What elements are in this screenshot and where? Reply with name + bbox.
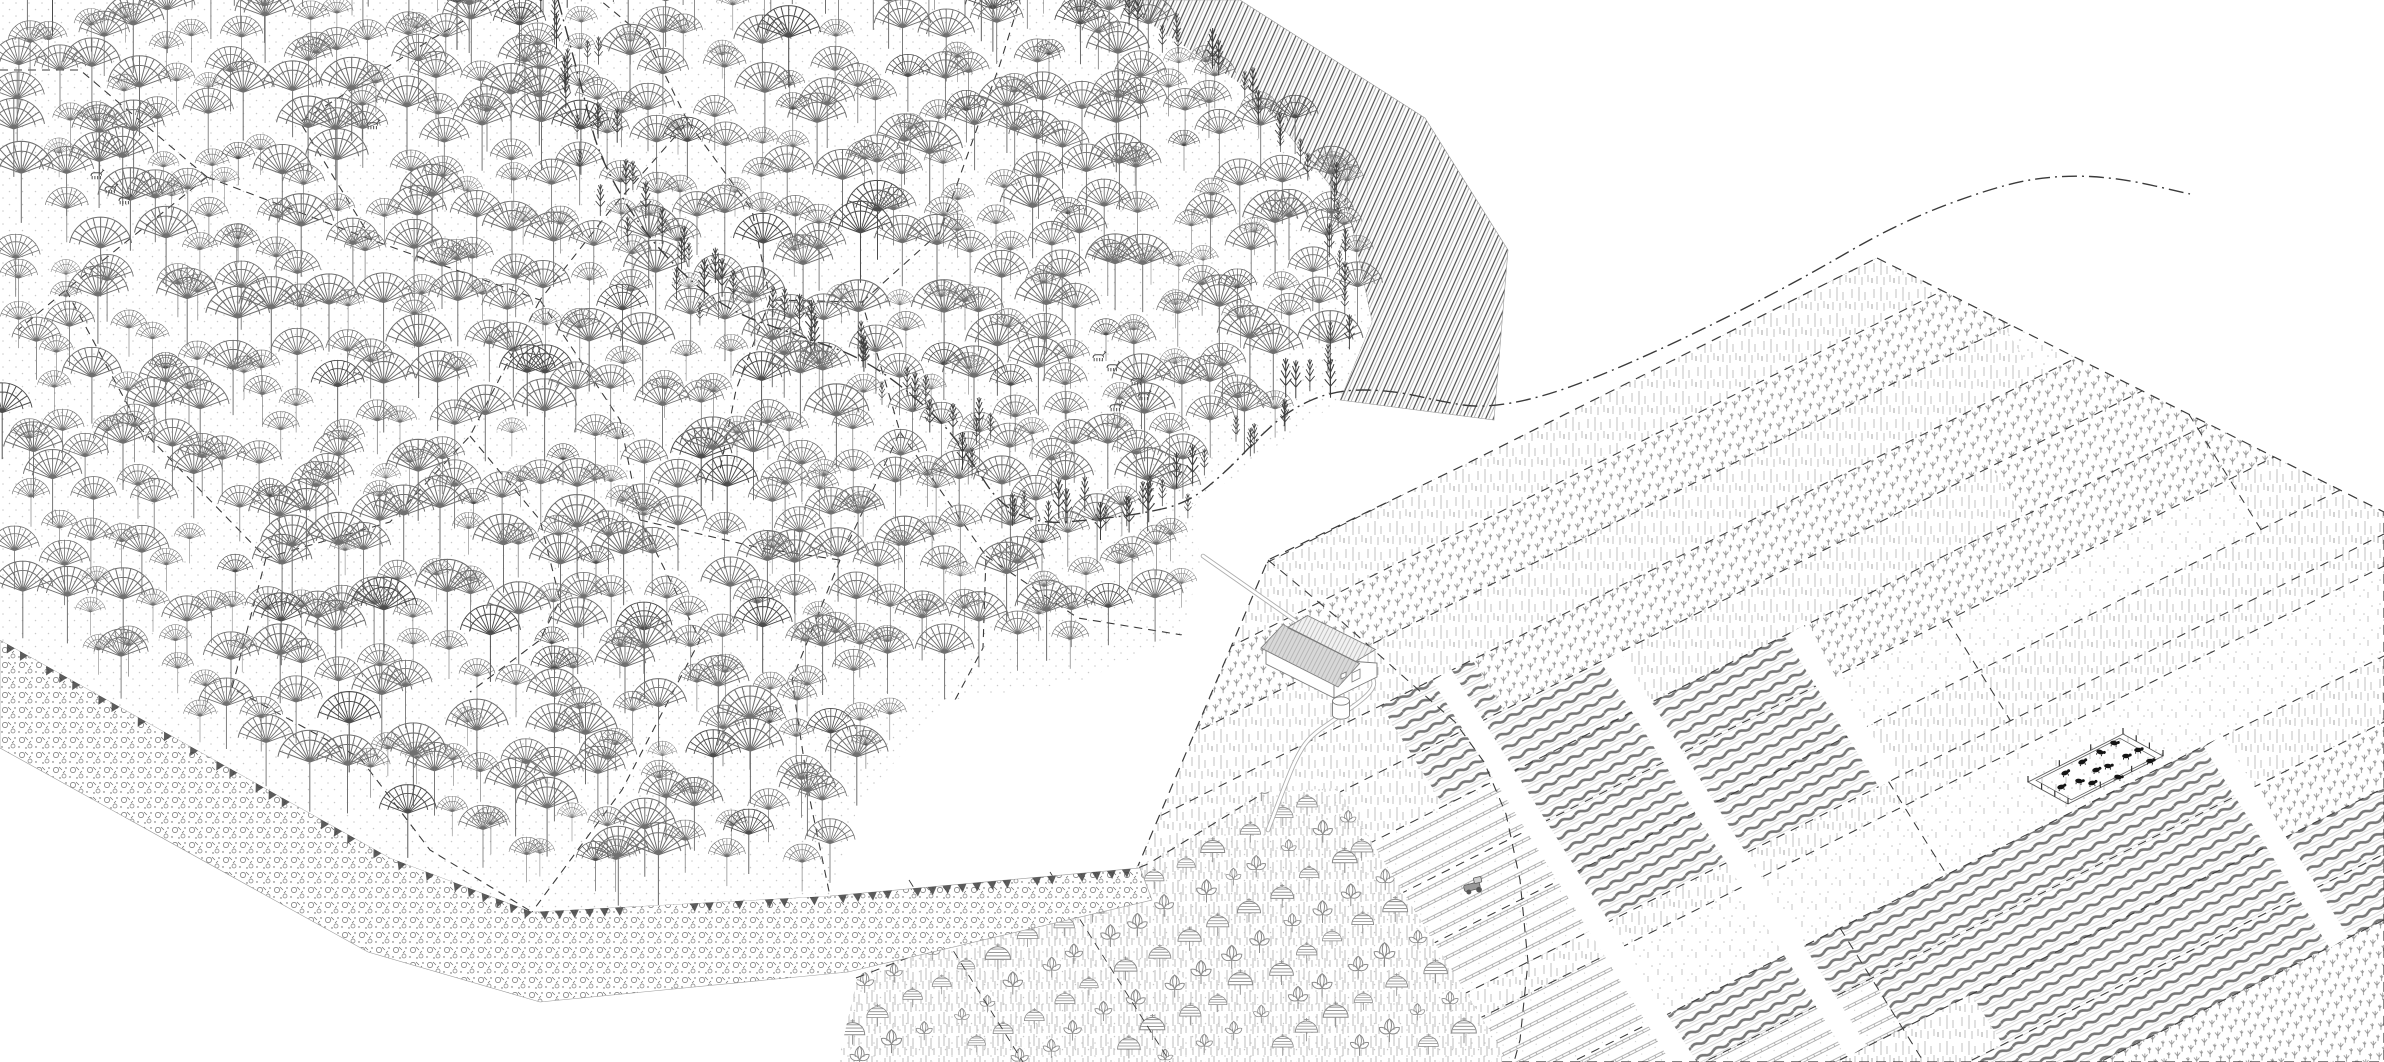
field-parcel-dotsgrass <box>2005 0 2384 378</box>
forest-parcel-boundary <box>955 700 1135 873</box>
axonometric-landscape-svg <box>0 0 2384 1062</box>
forest-parcel-boundary <box>1195 505 1268 560</box>
field-parcel-grass <box>2049 0 2384 290</box>
water-tank-top <box>1333 697 1350 705</box>
parcel-cross-line <box>2231 146 2325 297</box>
orchard-flower-bush <box>850 1045 870 1062</box>
orchard-flower-bush <box>1011 1047 1029 1062</box>
landscape-drawing-canvas <box>0 0 2384 1062</box>
water-tank <box>1333 697 1350 719</box>
